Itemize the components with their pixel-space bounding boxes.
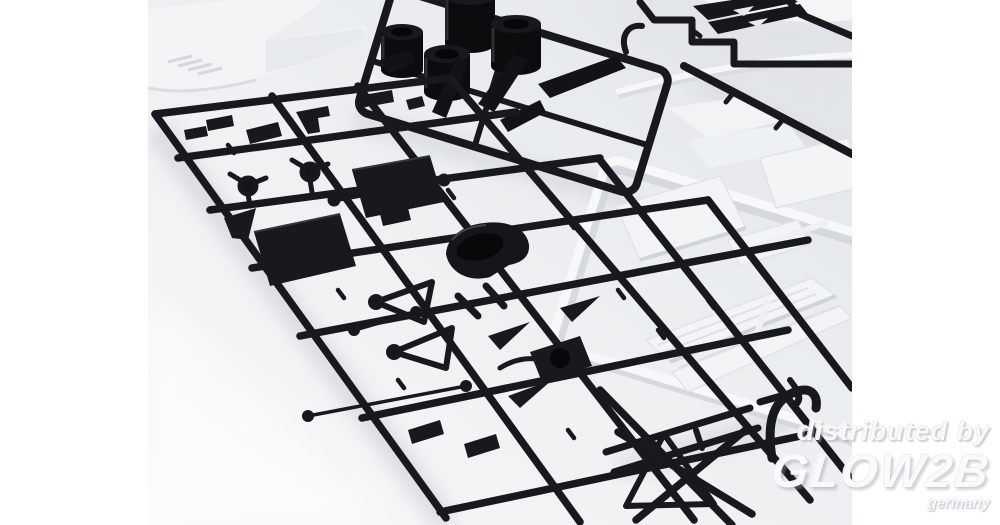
product-photo-canvas: distributed by GLOW2B germany <box>0 0 1000 525</box>
sprue-photo <box>148 0 852 525</box>
sprue-photo-graphic <box>148 0 852 525</box>
